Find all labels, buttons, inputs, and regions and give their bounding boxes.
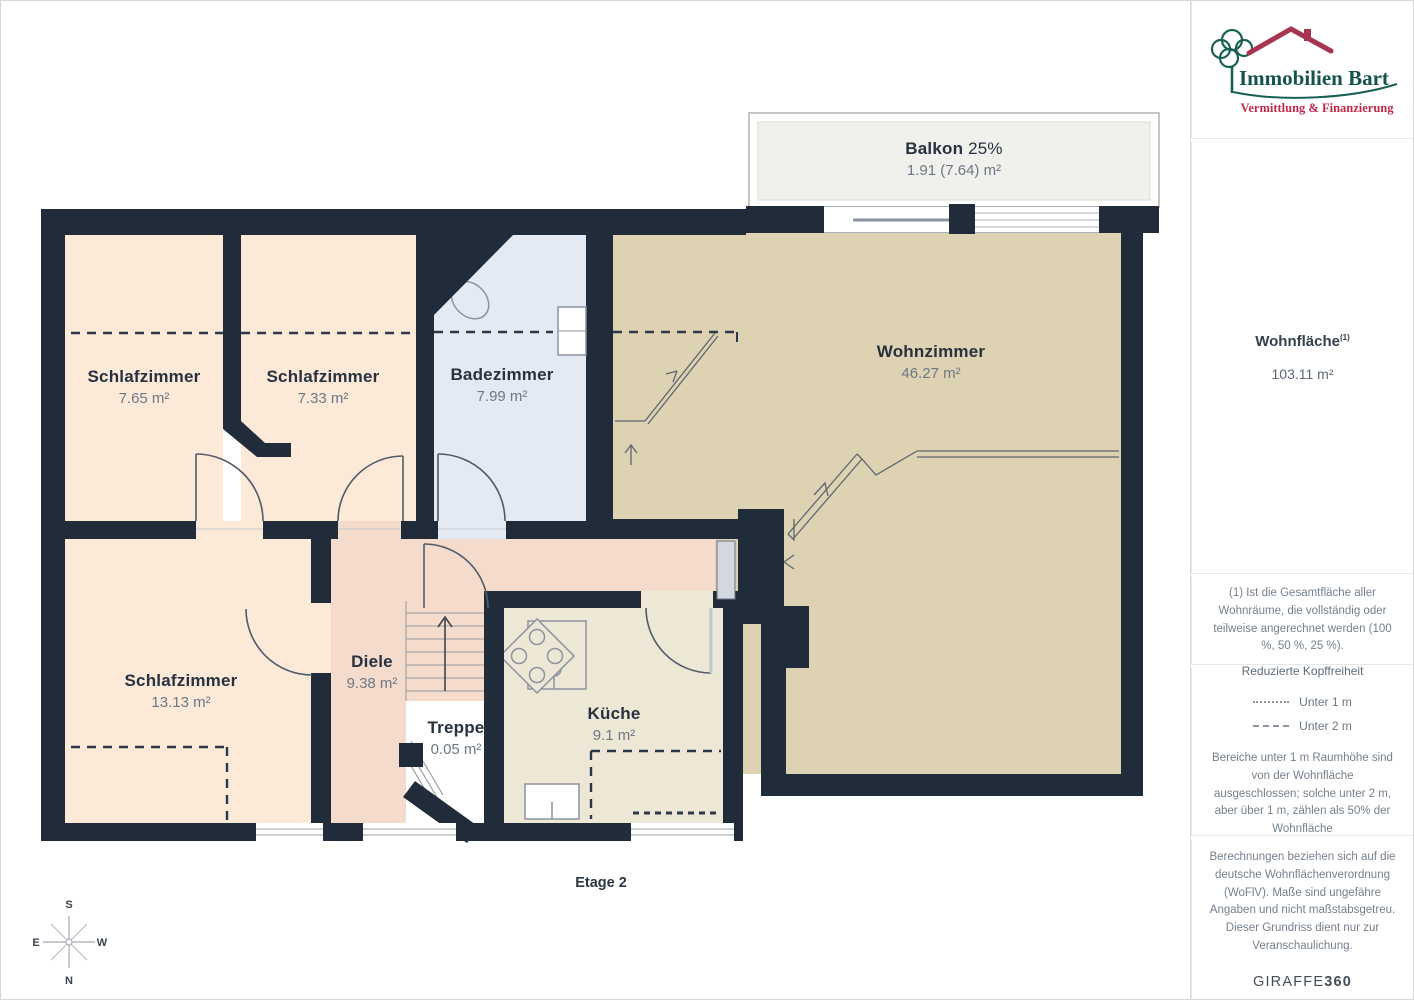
living-area-card: Wohnfläche(1) 103.11 m² [1191, 142, 1414, 574]
compass-east-label: E [32, 937, 39, 949]
logo-roof-icon [1249, 29, 1331, 53]
door-leaf [717, 541, 735, 599]
window [256, 823, 323, 841]
dashed-line-icon [1253, 725, 1289, 727]
headroom-legend-card: Reduzierte Kopffreiheit Unter 1 m Unter … [1191, 668, 1414, 836]
floorplan-drawing [1, 1, 1190, 999]
bedroom1-floor [65, 235, 223, 521]
info-sidebar: Immobilien Bart Vermittlung & Finanzieru… [1190, 1, 1414, 999]
living-area-title: Wohnfläche(1) [1255, 333, 1350, 350]
dotted-line-icon [1253, 701, 1289, 703]
compass-south-label: S [65, 899, 72, 911]
floorplan-page: Balkon 25% 1.91 (7.64) m² Schlafzimmer7.… [0, 0, 1414, 1000]
compass-icon: S N E W [29, 894, 109, 990]
legend-item-under-2m: Unter 2 m [1253, 719, 1352, 733]
bathroom-window [558, 307, 586, 355]
balcony [749, 113, 1159, 207]
company-logo-card: Immobilien Bart Vermittlung & Finanzieru… [1191, 1, 1414, 139]
disclaimer-card: Berechnungen beziehen sich auf die deuts… [1191, 839, 1414, 1000]
balcony-sliding-door [824, 204, 1099, 234]
legend-title: Reduzierte Kopffreiheit [1242, 664, 1364, 678]
giraffe360-logo: GIRAFFE360 [1253, 974, 1352, 990]
window [363, 823, 456, 841]
hall-floor [331, 539, 406, 823]
floor-label: Etage 2 [575, 875, 627, 891]
living-area-value: 103.11 m² [1272, 366, 1334, 382]
sink-icon [525, 784, 579, 819]
window [631, 823, 734, 841]
brand-name: Immobilien Bart [1239, 66, 1389, 90]
bedroom3-floor [65, 539, 311, 823]
company-logo: Immobilien Bart Vermittlung & Finanzieru… [1205, 19, 1401, 121]
compass-west-label: W [97, 937, 108, 949]
floorplan-canvas: Balkon 25% 1.91 (7.64) m² Schlafzimmer7.… [1, 1, 1190, 999]
footnote-text: (1) Ist die Gesamtfläche aller Wohnräume… [1208, 585, 1397, 656]
bedroom2-floor [241, 235, 416, 521]
footnote-card: (1) Ist die Gesamtfläche aller Wohnräume… [1191, 577, 1414, 665]
legend-item-under-1m: Unter 1 m [1253, 695, 1352, 709]
compass-north-label: N [65, 975, 73, 987]
legend-note: Bereiche unter 1 m Raumhöhe sind von der… [1208, 750, 1397, 839]
brand-tagline: Vermittlung & Finanzierung [1240, 101, 1394, 115]
disclaimer-text: Berechnungen beziehen sich auf die deuts… [1208, 849, 1397, 956]
